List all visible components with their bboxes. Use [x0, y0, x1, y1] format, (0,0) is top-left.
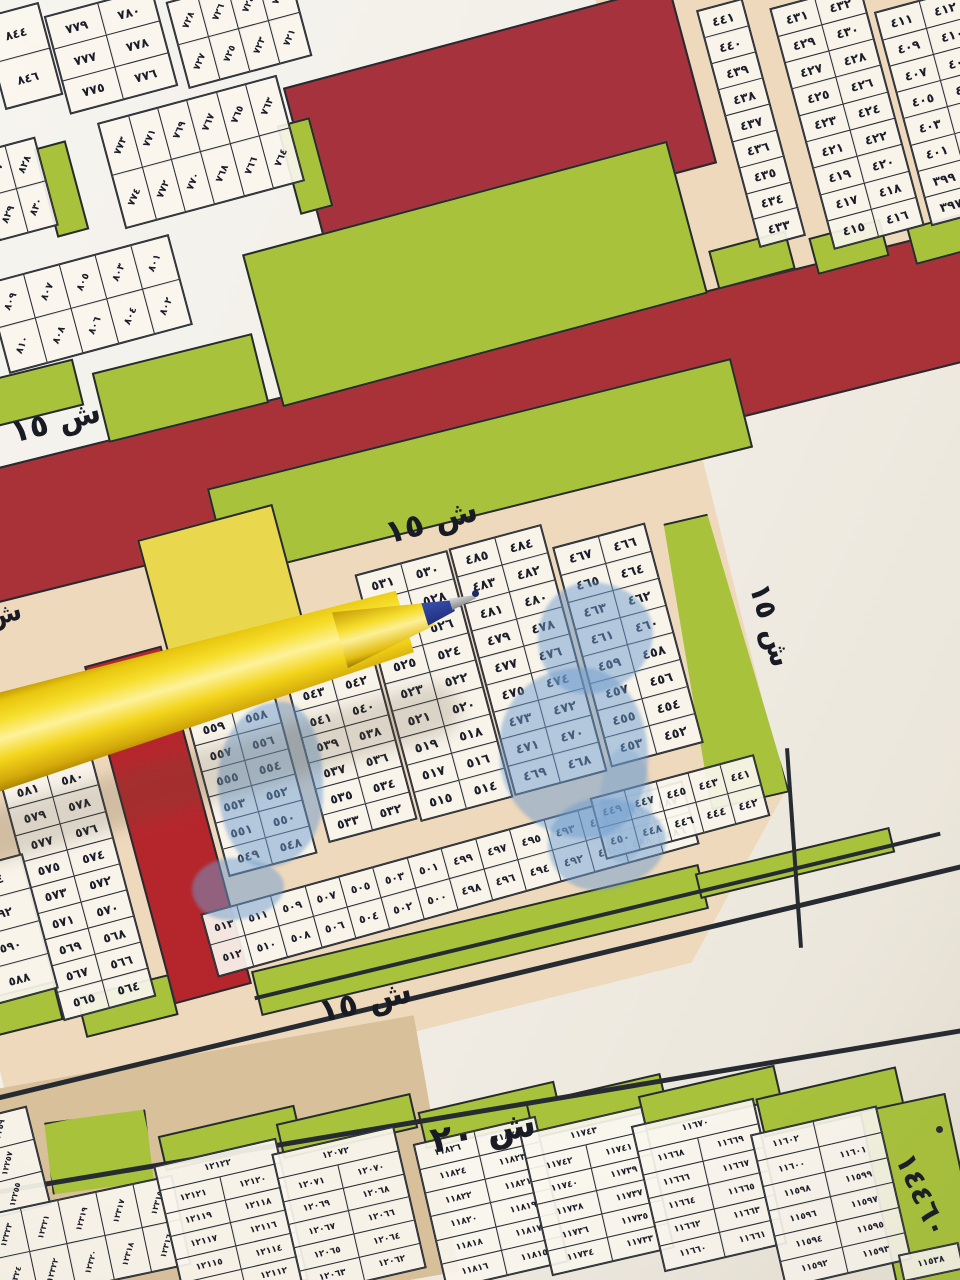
parcel-number: ١٢١٢١ [179, 1187, 208, 1203]
parcel-number: ٧٧١ [142, 128, 159, 149]
parcel-number: ١٢٣٢٤ [8, 1265, 23, 1280]
parcel-number: ١٢٠٦٨ [362, 1185, 391, 1201]
parcel-number: ١١٦٦١ [738, 1229, 767, 1245]
parcel-number: ٤٥٤ [655, 696, 682, 717]
parcel-number: ٤٠٥ [910, 89, 936, 109]
parcel-number: ٥٣٠ [414, 562, 441, 583]
parcel-number: ١١٨١٩ [509, 1200, 538, 1216]
parcel-number: ١١٦٦٢ [673, 1219, 702, 1235]
parcel-number: ١٢١٢٠ [238, 1174, 267, 1190]
parcel-number: ٤٨١ [478, 602, 505, 623]
map-dot [936, 1126, 943, 1133]
parcel-number: ١١٧٣٣ [626, 1234, 655, 1250]
parcel-number: ١١٦٦٩ [716, 1135, 745, 1151]
parcel-number: ٧٧٩ [63, 16, 89, 36]
parcel-number: ١١٨٢٤ [439, 1166, 468, 1182]
parcel-number: ٧٦٦ [243, 155, 260, 176]
parcel-number: ٤٤١ [710, 9, 736, 29]
parcel-number: ٤٣٣ [766, 217, 792, 237]
parcel-number: ١٢٢٥٥ [8, 1182, 23, 1208]
parcel-number: ٥٦٦ [108, 951, 134, 971]
parcel-number: ٥٧٠ [94, 899, 120, 919]
parcel-number: ٤٣٧ [738, 113, 764, 133]
parcel-number: ٤٤٣ [697, 775, 720, 793]
parcel-number: ٥٣٥ [328, 786, 354, 806]
parcel-number: ٥٩٢ [0, 904, 14, 923]
parcel-number: ٥٨٨ [7, 970, 32, 989]
parcel-number: ٧٧٦ [133, 65, 159, 85]
parcel-number: ١٢٣١٧ [111, 1198, 126, 1224]
parcel-number: ٧٨٠ [116, 2, 142, 22]
parcel-number: ٥٠٢ [391, 899, 414, 917]
parcel-number: ٧٧٨ [124, 34, 150, 54]
parcel-number: ١١٦٦٨ [657, 1148, 686, 1164]
parcel-number: ٤٥٦ [648, 669, 675, 690]
parcel-number: ٤٣٤ [759, 191, 785, 211]
parcel-number: ١١٧٤٣ [569, 1125, 598, 1141]
parcel-number: ٧٢٦ [210, 2, 227, 22]
parcel-number: ٧٧٠ [185, 171, 202, 192]
parcel-number: ١١٥٩٧ [850, 1194, 879, 1210]
parcel-number: ٧٧٢ [155, 179, 172, 200]
parcel-number: ٧٦٧ [200, 112, 217, 133]
parcel-number: ٧٢٨ [180, 10, 197, 30]
parcel-number: ٤٤٥ [665, 784, 688, 802]
parcel-number: ٧٢٧ [191, 52, 208, 72]
parcel-number: ١٢٠٦٣ [318, 1268, 347, 1280]
parcel-number: ٨٢٩ [0, 203, 17, 224]
parcel-number: ٥٠٨ [289, 928, 312, 946]
parcel-number: ٨٠٧ [39, 281, 56, 302]
parcel-number: ٧٧٥ [80, 79, 106, 99]
parcel-number: ٥١٨ [457, 724, 484, 745]
parcel-number: ٧٦٥ [229, 104, 246, 125]
parcel-number: ٤٢٣ [812, 113, 838, 133]
parcel-number: ١١٦٦٠ [678, 1243, 707, 1259]
parcel-number: ٤٢٦ [849, 75, 875, 95]
parcel-number: ١١٦٦٤ [668, 1196, 697, 1212]
parcel-number: ٨٠٢ [158, 296, 175, 317]
parcel-number: ٤٩٩ [451, 850, 474, 868]
parcel-number: ٧٧٣ [112, 135, 129, 156]
parcel-number: ٤٣٦ [745, 139, 771, 159]
parcel-number: ٥٤٢ [343, 672, 369, 692]
parcel-number: ٣٩٩ [931, 168, 957, 188]
parcel-number: ٤١٩ [826, 165, 852, 185]
parcel-block-tl1: ٧٧٩٧٨٠٧٧٧٧٧٨٧٧٥٧٧٦ [44, 0, 179, 115]
map-photo: ١٤٤٦٠ ٨٤٤٨٤٦ ٧٧٩٧٨٠٧٧٧٧٧٨٧٧٥٧٧٦ ٧٢٨٧٢٦٧٢… [0, 0, 960, 1280]
parcel-number: ١١٥٩٥ [856, 1219, 885, 1235]
parcel-number: ٤١٥ [841, 218, 867, 238]
parcel-number: ١٢٠٦٤ [372, 1231, 401, 1247]
parcel-number: ١١٥٩٦ [789, 1209, 818, 1225]
parcel-number: ١١٧٣٨ [555, 1201, 584, 1217]
parcel-number: ٤٣٨ [731, 87, 757, 107]
parcel-number: ١٢٠٦٦ [367, 1208, 396, 1224]
parcel-number: ٥٦٥ [71, 989, 97, 1009]
parcel-number: ١٢٠٦٥ [313, 1245, 342, 1261]
parcel-number: ١١٦٠٠ [777, 1159, 806, 1175]
parcel-number: ١١٥٩٩ [844, 1169, 873, 1185]
parcel-number: ٤٤٢ [737, 795, 760, 813]
parcel-number: ١٢٠٧٢ [321, 1145, 350, 1161]
parcel-number: ٧٢٢ [270, 0, 287, 6]
parcel-number: ٤٢٩ [791, 33, 817, 53]
parcel-number: ٤٧٩ [485, 629, 512, 650]
parcel-number: ٨١٠ [14, 334, 31, 355]
parcel-number: ٥٣٢ [378, 801, 404, 821]
parcel-number: ١١٦٦٥ [727, 1182, 756, 1198]
parcel-number: ٨٢٨ [17, 153, 34, 174]
parcel-number: ١٢٠٦٢ [378, 1254, 407, 1270]
parcel-number: ٤٤٦ [672, 813, 695, 831]
parcel-number: ١١٨٢٣ [498, 1153, 527, 1169]
parcel-number: ٤٠٩ [896, 37, 922, 57]
parcel-number: ٤٣٩ [724, 61, 750, 81]
parcel-number: ١٢٣٢١ [36, 1213, 51, 1239]
parcel-number: ١١٨١٥ [520, 1247, 549, 1263]
parcel-number: ٥٠٩ [281, 898, 304, 916]
parcel-block-tl2: ٧٢٨٧٢٦٧٢٤٧٢٢٧٢٧٧٢٥٧٢٣٧٢١ [166, 0, 313, 89]
parcel-number: ٧٢٤ [240, 0, 257, 14]
parcel-number: ١١٨٢٢ [444, 1190, 473, 1206]
parcel-number: ١١٨١٦ [460, 1261, 489, 1277]
parcel-number: ١٢٢٥٩ [0, 1118, 6, 1144]
parcel-number: ٤٥٢ [662, 723, 689, 744]
parcel-row: ٨٢٩٨٣٠ [0, 181, 56, 239]
parcel-number: ١١٨١٧ [514, 1224, 543, 1240]
parcel-number: ٧٦٤ [272, 147, 289, 168]
parcel-number: ١١٦٦٣ [732, 1206, 761, 1222]
parcel-number: ١١٧٣٦ [561, 1225, 590, 1241]
parcel-number: ١٢٣٢٢ [45, 1257, 60, 1280]
parcel-number: ١١٥٩٨ [783, 1184, 812, 1200]
parcel-number: ١١٥٩٤ [794, 1234, 823, 1250]
parcel-number: ٤٣٢ [827, 0, 853, 16]
parcel-number: ٤٩٨ [460, 880, 483, 898]
parcel-number: ٨٤٤ [4, 24, 29, 43]
parcel-number: ٤٠١ [924, 142, 950, 162]
parcel-number: ١٢١١٩ [184, 1210, 213, 1226]
parcel-number: ٥٧٤ [80, 847, 106, 867]
parcel-number: ١٢٣٢٣ [0, 1221, 14, 1247]
parcel-number: ٤٤٤ [705, 804, 728, 822]
parcel-number: ١٢١١٤ [254, 1243, 283, 1259]
parcel-number: ١٢٣١٨ [120, 1241, 135, 1267]
parcel-number: ٤٢٤ [856, 101, 882, 121]
parcel-number: ٤٧٧ [492, 656, 519, 677]
parcel-number: ٥٦٤ [115, 978, 141, 998]
parcel-number: ٤٦٦ [611, 534, 638, 555]
parcel-number: ٤٠٣ [917, 116, 943, 136]
parcel-number: ٧٢٣ [251, 36, 268, 56]
parcel-number: ٤١٧ [833, 192, 859, 212]
parcel-number: ٧٦٣ [259, 96, 276, 117]
parcel-number: ٥٣١ [369, 573, 396, 594]
parcel-number: ١١٧٣٥ [620, 1211, 649, 1227]
parcel-number: ٥٠٤ [357, 909, 380, 927]
parcel-number: ٤٠٦ [953, 78, 960, 98]
parcel-number: ١٢١١٥ [195, 1257, 224, 1273]
parcel-number: ٧٦٩ [171, 120, 188, 141]
parcel-number: ١١٧٤١ [604, 1142, 633, 1158]
parcel-number: ٥٠٠ [426, 890, 449, 908]
parcel-number: ٥٩٠ [0, 937, 23, 956]
parcel-number: ١٢٣١٩ [74, 1206, 89, 1232]
parcel-number: ٨٠٩ [3, 291, 20, 312]
parcel-number: ٥٧٢ [87, 873, 113, 893]
parcel-number: ٥٠٧ [315, 888, 338, 906]
parcel-number: ٤٨٢ [515, 563, 542, 584]
parcel-number: ٤١٦ [884, 207, 910, 227]
parcel-number: ٤٩٦ [494, 871, 517, 889]
parcel-number: ٤٨٥ [463, 547, 490, 568]
parcel-number: ٤٤٠ [717, 35, 743, 55]
parcel-number: ١٢٣٢٠ [83, 1249, 98, 1275]
parcel-number: ٤٠٧ [903, 63, 929, 83]
parcel-number: ١١٨١٨ [455, 1237, 484, 1253]
parcel-number: ٥٣٣ [335, 812, 361, 832]
parcel-number: ٤٢٢ [863, 127, 889, 147]
parcel-number: ٥٠٥ [349, 879, 372, 897]
parcel-number: ١٢١١٦ [249, 1220, 278, 1236]
parcel-number: ١١٥٩٢ [800, 1259, 829, 1275]
parcel-number: ١١٥٣٨ [917, 1254, 946, 1269]
parcel-number: ٨٠١ [146, 252, 163, 273]
parcel-number: ١٢٠٧٠ [356, 1162, 385, 1178]
parcel-number: ٥١٧ [420, 763, 447, 784]
parcel-number: ١٢٠٦٧ [307, 1221, 336, 1237]
parcel-number: ١١٨٢١ [503, 1176, 532, 1192]
parcel-number: ١٢١١٢ [260, 1266, 289, 1280]
parcel-number: ١٢٢٥٧ [0, 1150, 14, 1176]
parcel-number: ٥٩٤ [0, 871, 5, 890]
parcel-number: ٧٢١ [281, 28, 298, 48]
parcel-number: ٤٩٥ [520, 831, 543, 849]
parcel-number: ٧٧٤ [126, 187, 143, 208]
parcel-number: ٨٠٨ [50, 325, 67, 346]
parcel-number: ٥٧٣ [43, 885, 69, 905]
parcel-number: ١١٧٣٧ [615, 1188, 644, 1204]
parcel-number: ٨٣٠ [28, 196, 45, 217]
parcel-number: ١٢١١٨ [244, 1197, 273, 1213]
parcel-number: ٤٢٨ [842, 48, 868, 68]
parcel-number: ٥٧٥ [36, 859, 62, 879]
parcel-number: ٤٣١ [784, 7, 810, 27]
parcel-number: ٥٧١ [50, 911, 76, 931]
parcel-number: ٤١٢ [932, 0, 958, 19]
parcel-row: ٨٤٦ [0, 49, 61, 108]
parcel-number: ١١٦٦٦ [662, 1172, 691, 1188]
parcel-number: ٥٠١ [417, 860, 440, 878]
parcel-number: ٤٨٤ [508, 536, 535, 557]
parcel-number: ٥٦٧ [64, 963, 90, 983]
parcel-number: ٤٦٤ [619, 561, 646, 582]
parcel-number: ٥٠٦ [323, 918, 346, 936]
parcel-number: ٥٣٤ [371, 775, 397, 795]
parcel-number: ٥١٢ [221, 947, 244, 965]
parcel-number: ٤٢٥ [805, 86, 831, 106]
parcel-number: ٥١٠ [255, 937, 278, 955]
parcel-number: ٤١١ [889, 10, 915, 30]
parcel-number: ١١٨٢٠ [450, 1214, 479, 1230]
parcel-number: ٨٤٦ [16, 69, 41, 88]
parcel-number: ٤٤١ [729, 766, 752, 784]
parcel-number: ١١٥٩٣ [862, 1244, 891, 1260]
parcel-number: ٥٠٣ [383, 869, 406, 887]
parcel-number: ٣٩٧ [938, 195, 960, 215]
parcel-number: ١١٧٣٩ [610, 1165, 639, 1181]
parcel-number: ٨٠٦ [86, 315, 103, 336]
parcel-number: ١٢١١٧ [189, 1233, 218, 1249]
parcel-number: ١٢٠٦٩ [302, 1198, 331, 1214]
parcel-number: ١١٧٣٤ [566, 1248, 595, 1264]
parcel-number: ١٢٠٧١ [297, 1175, 326, 1191]
parcel-number: ٧٦٨ [214, 163, 231, 184]
parcel-number: ٥٦٨ [101, 925, 127, 945]
parcel-number: ٤٢٧ [798, 60, 824, 80]
parcel-number: ٤٠٨ [946, 51, 960, 71]
parcel-number: ١١٦٠٢ [771, 1134, 800, 1150]
parcel-number: ٤٢١ [819, 139, 845, 159]
parcel-number: ٤٩٤ [528, 861, 551, 879]
parcel-number: ٥١٤ [472, 778, 499, 799]
parcel-number: ٧٧٧ [72, 48, 98, 68]
parcel-number: ٤٦٧ [567, 546, 594, 567]
parcel-number: ٥١٥ [427, 790, 454, 811]
parcel-number: ٨٠٥ [75, 272, 92, 293]
parcel-number: ١١٦٦٧ [721, 1158, 750, 1174]
parcel-number: ٤٢٠ [870, 154, 896, 174]
parcel-number: ٤٣٥ [752, 165, 778, 185]
parcel-number: ٨٢٧ [0, 161, 6, 182]
parcel-number: ٤٣٠ [835, 22, 861, 42]
parcel-number: ١٢١٢٢ [203, 1157, 232, 1173]
pen-ball-point [472, 590, 479, 597]
parcel-number: ١١٧٤٠ [550, 1178, 579, 1194]
parcel-number: ١١٧٤٢ [545, 1155, 574, 1171]
parcel-number: ٨٠٤ [122, 306, 139, 327]
parcel-number: ٧٢٥ [221, 44, 238, 64]
parcel-number: ٤١٠ [939, 25, 960, 45]
parcel-number: ٨٠٣ [110, 262, 127, 283]
parcel-number: ١١٦٠١ [839, 1144, 868, 1160]
parcel-number: ١١٦٧٠ [681, 1118, 710, 1134]
parcel-block-tl5: ٨٠٩٨٠٧٨٠٥٨٠٣٨٠١٨١٠٨٠٨٨٠٦٨٠٤٨٠٢ [0, 234, 193, 374]
parcel-number: ٥٦٩ [57, 937, 83, 957]
parcel-number: ٤٩٧ [486, 841, 509, 859]
parcel-number: ٥١٦ [465, 751, 492, 772]
parcel-number: ٤١٨ [877, 180, 903, 200]
parcel-number: ٥٢٤ [436, 643, 463, 664]
